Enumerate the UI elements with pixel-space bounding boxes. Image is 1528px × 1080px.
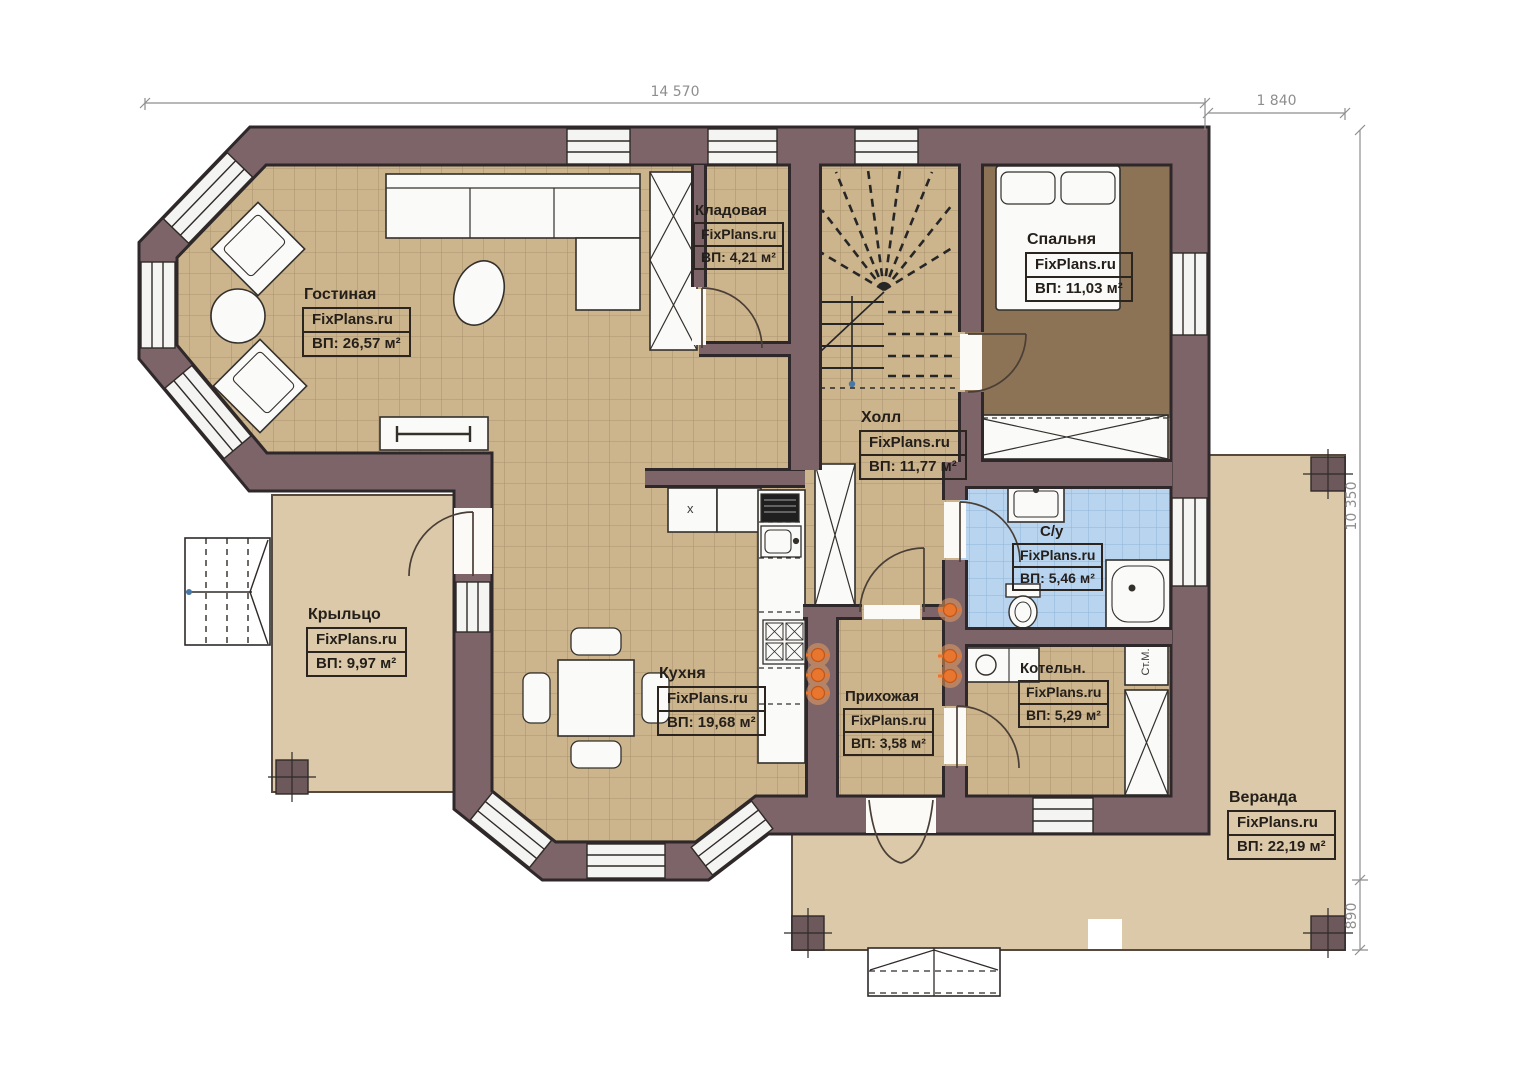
bedroom-wardrobe (965, 415, 1168, 459)
room-name: Крыльцо (308, 607, 407, 623)
dimension-top-right: 1 840 (1208, 93, 1345, 109)
room-area: ВП: 3,58 м² (845, 733, 932, 754)
kitchen-unit-mark: х (687, 501, 694, 516)
floor-plan-drawing (0, 0, 1528, 1080)
room-name: Гостиная (304, 287, 411, 303)
brand-watermark: FixPlans.ru (304, 309, 409, 333)
room-name: Спальня (1027, 232, 1133, 248)
room-name: Прихожая (845, 689, 934, 704)
brand-watermark: FixPlans.ru (695, 224, 782, 247)
dimension-right: 10 350 (1344, 466, 1360, 546)
tv-stand (380, 417, 488, 450)
floor-plan-canvas: Гостиная FixPlans.ru ВП: 26,57 м² Кладов… (0, 0, 1528, 1080)
brand-watermark: FixPlans.ru (1027, 254, 1131, 278)
room-name: Кладовая (695, 203, 784, 218)
room-area: ВП: 9,97 м² (308, 653, 405, 675)
room-label-veranda: Веранда FixPlans.ru ВП: 22,19 м² (1227, 790, 1336, 860)
window (456, 582, 490, 632)
kitchen-sink (761, 526, 801, 557)
room-label-kitchen: Кухня FixPlans.ru ВП: 19,68 м² (657, 666, 766, 736)
window (1172, 253, 1207, 335)
wardrobe (650, 172, 697, 350)
room-label-hall: Холл FixPlans.ru ВП: 11,77 м² (859, 410, 967, 480)
brand-watermark: FixPlans.ru (1229, 812, 1334, 836)
brand-watermark: FixPlans.ru (861, 432, 965, 456)
room-label-entryway: Прихожая FixPlans.ru ВП: 3,58 м² (843, 689, 934, 756)
side-table (211, 289, 265, 343)
room-label-storage: Кладовая FixPlans.ru ВП: 4,21 м² (693, 203, 784, 270)
window (141, 262, 175, 348)
room-area: ВП: 5,29 м² (1020, 705, 1107, 726)
room-area: ВП: 5,46 м² (1014, 568, 1101, 589)
room-area: ВП: 11,77 м² (861, 456, 965, 478)
porch-steps (185, 538, 270, 645)
room-area: ВП: 11,03 м² (1027, 278, 1131, 300)
room-area: ВП: 19,68 м² (659, 712, 764, 734)
room-label-living: Гостиная FixPlans.ru ВП: 26,57 м² (302, 287, 411, 357)
window (1033, 798, 1093, 833)
room-name: Холл (861, 410, 967, 426)
room-label-boiler: Котельн. FixPlans.ru ВП: 5,29 м² (1018, 661, 1109, 728)
room-label-bedroom: Спальня FixPlans.ru ВП: 11,03 м² (1025, 232, 1133, 302)
window (708, 129, 777, 164)
room-name: С/у (1040, 524, 1103, 539)
pillow (1001, 172, 1055, 204)
room-name: Веранда (1229, 790, 1336, 806)
cooktop (763, 620, 805, 664)
brand-watermark: FixPlans.ru (308, 629, 405, 653)
brand-watermark: FixPlans.ru (1020, 682, 1107, 705)
brand-watermark: FixPlans.ru (659, 688, 764, 712)
window (855, 129, 918, 164)
hall-cabinet (815, 464, 855, 606)
entrance-steps (868, 948, 1000, 996)
brand-watermark: FixPlans.ru (1014, 545, 1101, 568)
room-name: Котельн. (1020, 661, 1109, 676)
stove (761, 494, 799, 522)
brand-watermark: FixPlans.ru (845, 710, 932, 733)
boiler-cabinet (1125, 690, 1168, 795)
sink (1008, 486, 1064, 522)
room-label-bathroom: С/у FixPlans.ru ВП: 5,46 м² (1012, 524, 1103, 591)
room-label-porch: Крыльцо FixPlans.ru ВП: 9,97 м² (306, 607, 407, 677)
shower (1106, 560, 1170, 628)
washing-machine-tag: Ст.М. (1128, 642, 1164, 682)
window (587, 844, 665, 878)
pillow (1061, 172, 1115, 204)
room-area: ВП: 4,21 м² (695, 247, 782, 268)
dimension-bottom-right: 890 (1344, 886, 1360, 946)
room-name: Кухня (659, 666, 766, 682)
window (567, 129, 630, 164)
room-area: ВП: 22,19 м² (1229, 836, 1334, 858)
dimension-top: 14 570 (145, 84, 1205, 100)
room-area: ВП: 26,57 м² (304, 333, 409, 355)
fridge (717, 488, 761, 532)
window (1172, 498, 1207, 586)
